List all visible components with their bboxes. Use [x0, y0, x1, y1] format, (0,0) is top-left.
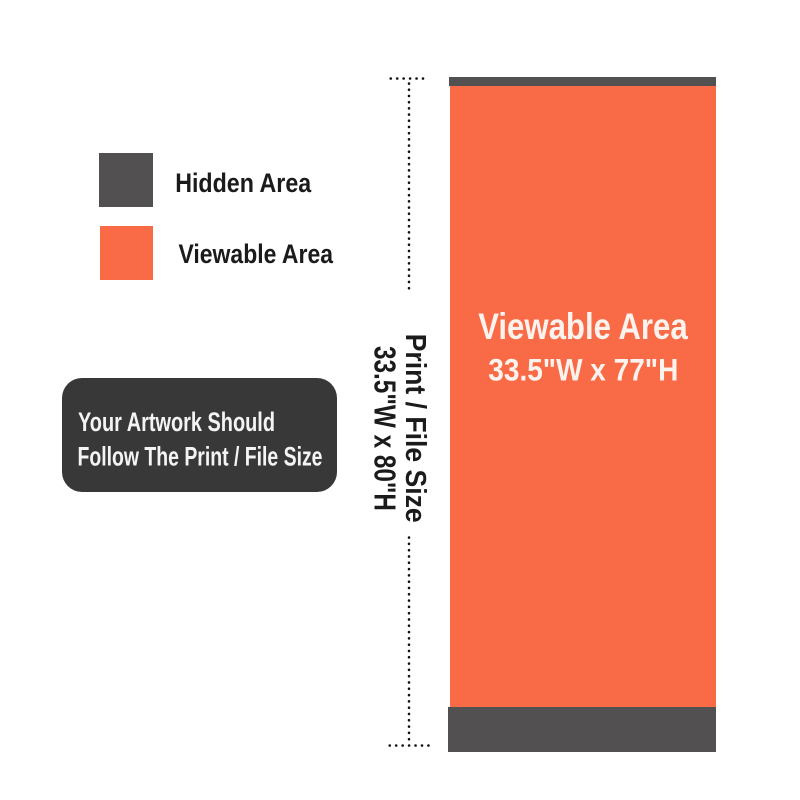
svg-text:Viewable Area: Viewable Area — [179, 239, 334, 269]
svg-text:Your Artwork Should: Your Artwork Should — [78, 407, 275, 437]
svg-text:Follow The Print / File Size: Follow The Print / File Size — [78, 441, 323, 471]
svg-text:Hidden Area: Hidden Area — [175, 168, 312, 198]
svg-text:Viewable Area: Viewable Area — [478, 306, 688, 347]
svg-text:33.5"W x 77"H: 33.5"W x 77"H — [488, 353, 678, 388]
svg-text:33.5"W x 80"H: 33.5"W x 80"H — [368, 346, 403, 511]
